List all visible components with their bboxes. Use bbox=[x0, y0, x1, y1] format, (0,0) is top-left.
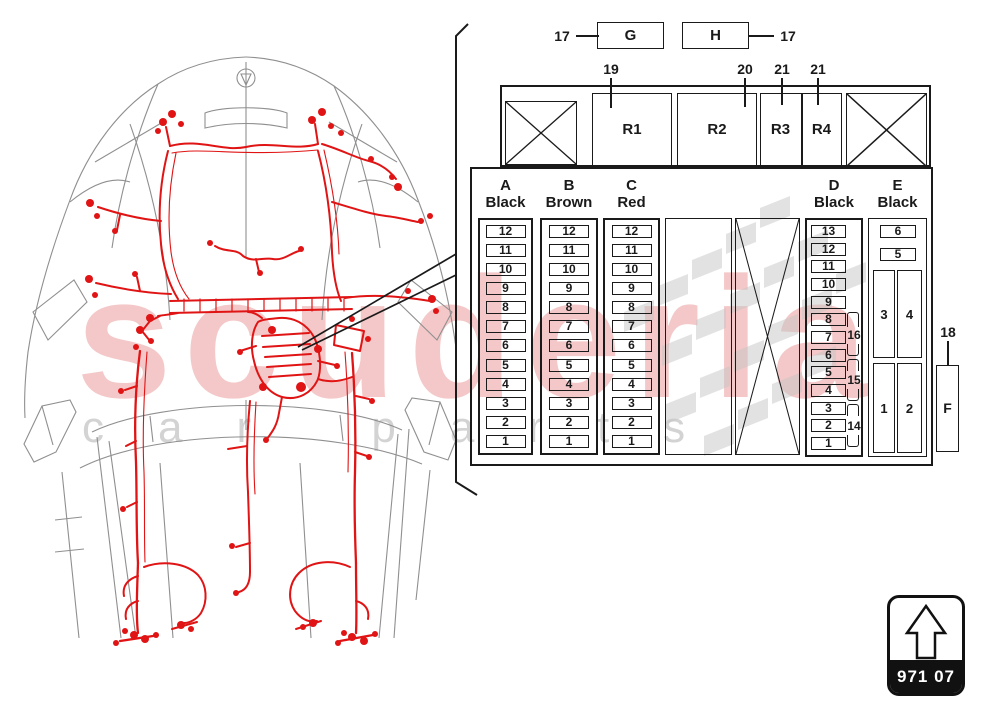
fuse-cell: 7 bbox=[612, 320, 652, 333]
fuse-cell: 8 bbox=[612, 301, 652, 314]
fuse-cell: 2 bbox=[486, 416, 526, 429]
fuse-cell: 5 bbox=[549, 359, 589, 372]
fuse-cell: 8 bbox=[486, 301, 526, 314]
fuse-cell: 12 bbox=[486, 225, 526, 238]
car-outline-drawing bbox=[24, 57, 456, 638]
slot-box-4: 4 bbox=[897, 270, 922, 358]
group-16-hook-top bbox=[847, 312, 859, 327]
fuse-cell: 11 bbox=[612, 244, 652, 257]
ref-21-a: 21 bbox=[771, 62, 793, 77]
fuse-cell: 11 bbox=[811, 260, 846, 273]
fuse-cell: 7 bbox=[549, 320, 589, 333]
fuse-cell: 1 bbox=[486, 435, 526, 448]
group-14-label: 14 bbox=[845, 419, 863, 433]
fuse-cell: 6 bbox=[880, 225, 916, 238]
fuse-cell: 5 bbox=[880, 248, 916, 261]
column-e-letter: E bbox=[868, 177, 927, 194]
slot-box-2: 2 bbox=[897, 363, 922, 453]
fuse-cell: 6 bbox=[486, 339, 526, 352]
fuse-cell: 4 bbox=[612, 378, 652, 391]
fuse-cell: 10 bbox=[549, 263, 589, 276]
ref-17-right-line bbox=[748, 35, 774, 37]
ref-18: 18 bbox=[935, 325, 961, 340]
up-arrow-icon bbox=[904, 603, 948, 661]
relay-r3-label: R3 bbox=[760, 93, 801, 166]
fuse-cell: 6 bbox=[549, 339, 589, 352]
ref-21-b: 21 bbox=[807, 62, 829, 77]
fuse-cell: 10 bbox=[612, 263, 652, 276]
fuse-cell: 12 bbox=[549, 225, 589, 238]
fuse-cell: 4 bbox=[486, 378, 526, 391]
fuse-column-a: 121110987654321 bbox=[478, 218, 533, 455]
relay-r4-label: R4 bbox=[801, 93, 842, 166]
fuse-cell: 9 bbox=[486, 282, 526, 295]
slot-box-1: 1 bbox=[873, 363, 895, 453]
catalog-page: scuderia car parts bbox=[0, 0, 1000, 727]
part-group-number: 971 07 bbox=[890, 660, 962, 693]
fuse-cell: 5 bbox=[612, 359, 652, 372]
group-14-hook-top bbox=[847, 404, 859, 416]
fuse-cell: 5 bbox=[486, 359, 526, 372]
group-14-hook-bottom bbox=[847, 435, 859, 447]
ref-17-right: 17 bbox=[776, 29, 800, 44]
fuse-cell: 1 bbox=[811, 437, 846, 450]
fuse-cell: 1 bbox=[549, 435, 589, 448]
fuse-cell: 2 bbox=[549, 416, 589, 429]
relay-r2-label: R2 bbox=[677, 93, 757, 166]
fuse-cell: 12 bbox=[612, 225, 652, 238]
fuse-cell: 12 bbox=[811, 243, 846, 256]
ref-17-left-line bbox=[576, 35, 599, 37]
column-d-color: Black bbox=[805, 194, 863, 211]
blank-crossed-slot-left bbox=[505, 101, 577, 165]
fuse-cell: 8 bbox=[549, 301, 589, 314]
fuse-cell: 10 bbox=[486, 263, 526, 276]
group-15-hook-bottom bbox=[847, 389, 859, 401]
column-b-color: Brown bbox=[540, 194, 598, 211]
fuse-cell: 7 bbox=[811, 331, 846, 344]
fuse-cell: 1 bbox=[612, 435, 652, 448]
ref-18-line bbox=[947, 341, 949, 366]
fuse-column-b: 121110987654321 bbox=[540, 218, 598, 455]
empty-slot-box bbox=[665, 218, 732, 455]
part-group-badge: 971 07 bbox=[887, 595, 965, 696]
fuse-column-e: 6 5 3 4 1 2 bbox=[868, 218, 927, 457]
crossed-slot-box bbox=[735, 218, 800, 455]
fuse-cell: 3 bbox=[549, 397, 589, 410]
fuse-cell: 6 bbox=[811, 349, 846, 362]
column-b-letter: B bbox=[540, 177, 598, 194]
relay-r1-label: R1 bbox=[592, 93, 672, 166]
fuse-cell: 9 bbox=[549, 282, 589, 295]
wiring-harness-drawing bbox=[96, 124, 430, 641]
fuse-cell: 3 bbox=[486, 397, 526, 410]
fuse-cell: 3 bbox=[811, 402, 846, 415]
fuse-cell: 8 bbox=[811, 313, 846, 326]
connector-box-g-label: G bbox=[597, 22, 664, 49]
aux-box-f-label: F bbox=[936, 365, 959, 452]
column-a-color: Black bbox=[478, 194, 533, 211]
group-16-label: 16 bbox=[845, 328, 863, 342]
fuse-cell: 4 bbox=[549, 378, 589, 391]
fuse-cell: 11 bbox=[486, 244, 526, 257]
fuse-column-c: 121110987654321 bbox=[603, 218, 660, 455]
fuse-cell: 4 bbox=[811, 384, 846, 397]
column-c-letter: C bbox=[603, 177, 660, 194]
ref-19: 19 bbox=[600, 62, 622, 77]
fuse-cell: 9 bbox=[612, 282, 652, 295]
ref-17-left: 17 bbox=[550, 29, 574, 44]
blank-crossed-slot-right bbox=[846, 93, 927, 167]
ref-20: 20 bbox=[734, 62, 756, 77]
column-c-color: Red bbox=[603, 194, 660, 211]
slot-box-3: 3 bbox=[873, 270, 895, 358]
group-16-hook-bottom bbox=[847, 344, 859, 356]
column-a-letter: A bbox=[478, 177, 533, 194]
group-15-hook-top bbox=[847, 359, 859, 371]
fuse-cell: 2 bbox=[612, 416, 652, 429]
group-15-label: 15 bbox=[845, 373, 863, 387]
fuse-cell: 3 bbox=[612, 397, 652, 410]
fuse-cell: 5 bbox=[811, 366, 846, 379]
connector-box-h-label: H bbox=[682, 22, 749, 49]
fuse-cell: 10 bbox=[811, 278, 846, 291]
fuse-cell: 2 bbox=[811, 419, 846, 432]
column-e-color: Black bbox=[868, 194, 927, 211]
fuse-cell: 7 bbox=[486, 320, 526, 333]
fuse-cell: 11 bbox=[549, 244, 589, 257]
fuse-cell: 13 bbox=[811, 225, 846, 238]
fuse-cell: 9 bbox=[811, 296, 846, 309]
column-d-letter: D bbox=[805, 177, 863, 194]
fuse-cell: 6 bbox=[612, 339, 652, 352]
